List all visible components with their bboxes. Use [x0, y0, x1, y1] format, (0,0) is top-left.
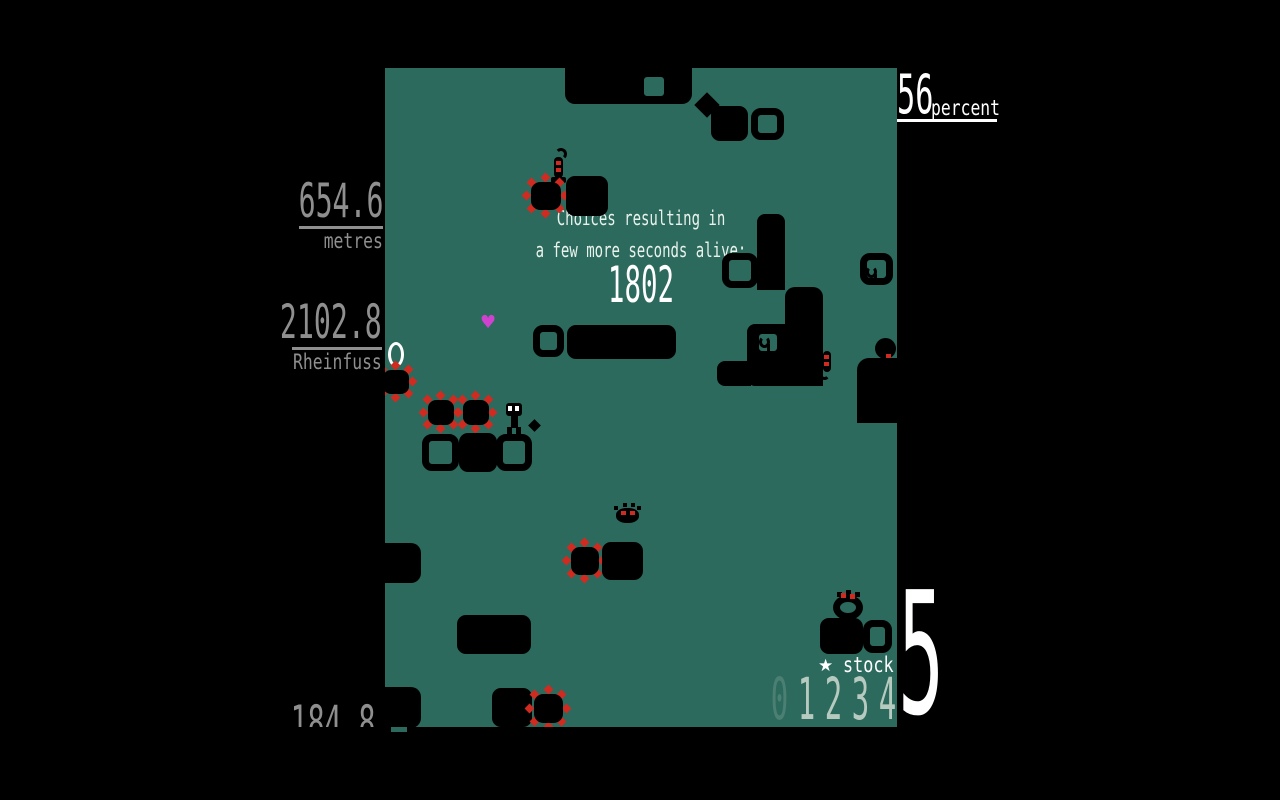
mine-spike: [580, 574, 590, 584]
spike-mine: [385, 366, 413, 398]
wreath-berry: [850, 594, 855, 599]
percent-underline: [897, 119, 997, 122]
mine-body: [428, 400, 454, 425]
window-block: [533, 325, 564, 357]
mine-spike: [436, 391, 446, 401]
mine-spike: [471, 391, 481, 401]
mine-body: [463, 400, 489, 425]
worm-spot: [556, 168, 561, 172]
worm-hook: [555, 148, 567, 160]
bug-leg: [631, 503, 635, 507]
wreath-berry: [841, 593, 846, 598]
creature-tail: [874, 274, 877, 281]
seahorse-tail: [819, 369, 830, 380]
mine-body: [571, 547, 599, 575]
rheinfuss-value: 2102.8: [280, 301, 382, 345]
solid-block: [457, 615, 531, 654]
mine-spike: [408, 377, 418, 387]
seahorse-enemy: [818, 350, 834, 380]
edge-notch: [385, 687, 421, 727]
solid-block: [820, 618, 863, 654]
bug-eye: [621, 511, 626, 515]
mine-spike: [391, 393, 401, 403]
heart-pickup: ♥: [480, 314, 496, 332]
solid-block: [567, 325, 676, 359]
message-score: 1802: [608, 260, 674, 310]
spike-mine: [530, 690, 567, 727]
metres-value: 654.6: [298, 180, 383, 224]
metres-label: metres: [324, 232, 383, 250]
mine-spike: [488, 407, 498, 417]
percent-label: percent: [931, 96, 1000, 120]
rheinfuss-label: Rheinfuss: [293, 353, 382, 371]
mine-body: [531, 182, 561, 210]
mine-spike: [562, 556, 572, 566]
debris-dot: [528, 419, 541, 432]
small-creature: [866, 264, 879, 280]
small-creature: [759, 334, 772, 350]
ghost-digit: 0: [771, 670, 785, 728]
stock-current: 5: [898, 570, 944, 740]
worm-spot: [556, 161, 561, 165]
player-foot: [507, 427, 512, 434]
ghost-digit: 1: [798, 670, 812, 728]
floor-gap: [391, 727, 407, 732]
metric-rheinfuss: 2102.8 Rheinfuss: [212, 301, 382, 373]
percent-indicator: 56 percent: [897, 68, 999, 124]
spike-mine: [459, 396, 493, 429]
right-edge-block: [857, 358, 897, 423]
bug-leg: [623, 503, 627, 507]
spike-mine: [527, 178, 565, 214]
mine-spike: [419, 407, 429, 417]
player-character: [506, 403, 523, 434]
ghost-digit: 2: [825, 670, 839, 728]
structure-column: [757, 214, 785, 290]
bug-leg: [637, 506, 641, 510]
creature-tail: [767, 344, 770, 351]
window-block: [722, 253, 758, 288]
mine-body: [534, 694, 563, 723]
wreath-knob: [855, 592, 860, 597]
seahorse-spot: [824, 362, 829, 366]
ceiling-block: [565, 68, 692, 104]
player-eye: [508, 406, 512, 411]
window-block: [637, 70, 671, 103]
window-block: [496, 434, 532, 471]
ghost-digit: 4: [879, 670, 893, 728]
solid-block: [566, 176, 608, 216]
player-eye: [515, 406, 519, 411]
solid-block: [459, 433, 497, 472]
game-playfield[interactable]: Choices resulting in a few more seconds …: [385, 68, 897, 727]
bug-body: [616, 508, 639, 523]
ghost-digit: 3: [852, 670, 866, 728]
metric-metres: 654.6 metres: [242, 180, 383, 252]
player-foot: [516, 427, 521, 434]
bug-leg: [614, 506, 618, 510]
mine-spike: [436, 424, 446, 434]
mine-spike: [522, 191, 532, 201]
solid-block: [602, 542, 643, 580]
wreath-creature: [833, 592, 864, 621]
window-block: [751, 108, 784, 140]
seahorse-spot: [824, 355, 829, 359]
window-block: [863, 620, 892, 653]
solid-block: [711, 106, 748, 141]
spike-mine: [567, 543, 603, 579]
mine-spike: [562, 703, 572, 713]
wreath-ring: [833, 595, 863, 620]
mine-spike: [471, 424, 481, 434]
bug-eye: [630, 511, 635, 515]
mine-spike: [580, 538, 590, 548]
window-block: [422, 434, 459, 471]
bottom-letterbox: [0, 727, 1280, 800]
stock-ghost-digits: 0 1 2 3 4: [764, 670, 899, 728]
percent-value: 56: [897, 68, 933, 122]
mine-spike: [543, 685, 553, 695]
edge-notch: [385, 543, 421, 583]
mine-body: [385, 370, 409, 394]
bug-enemy: [615, 503, 641, 525]
mine-spike: [541, 209, 551, 219]
structure-step: [717, 361, 751, 386]
